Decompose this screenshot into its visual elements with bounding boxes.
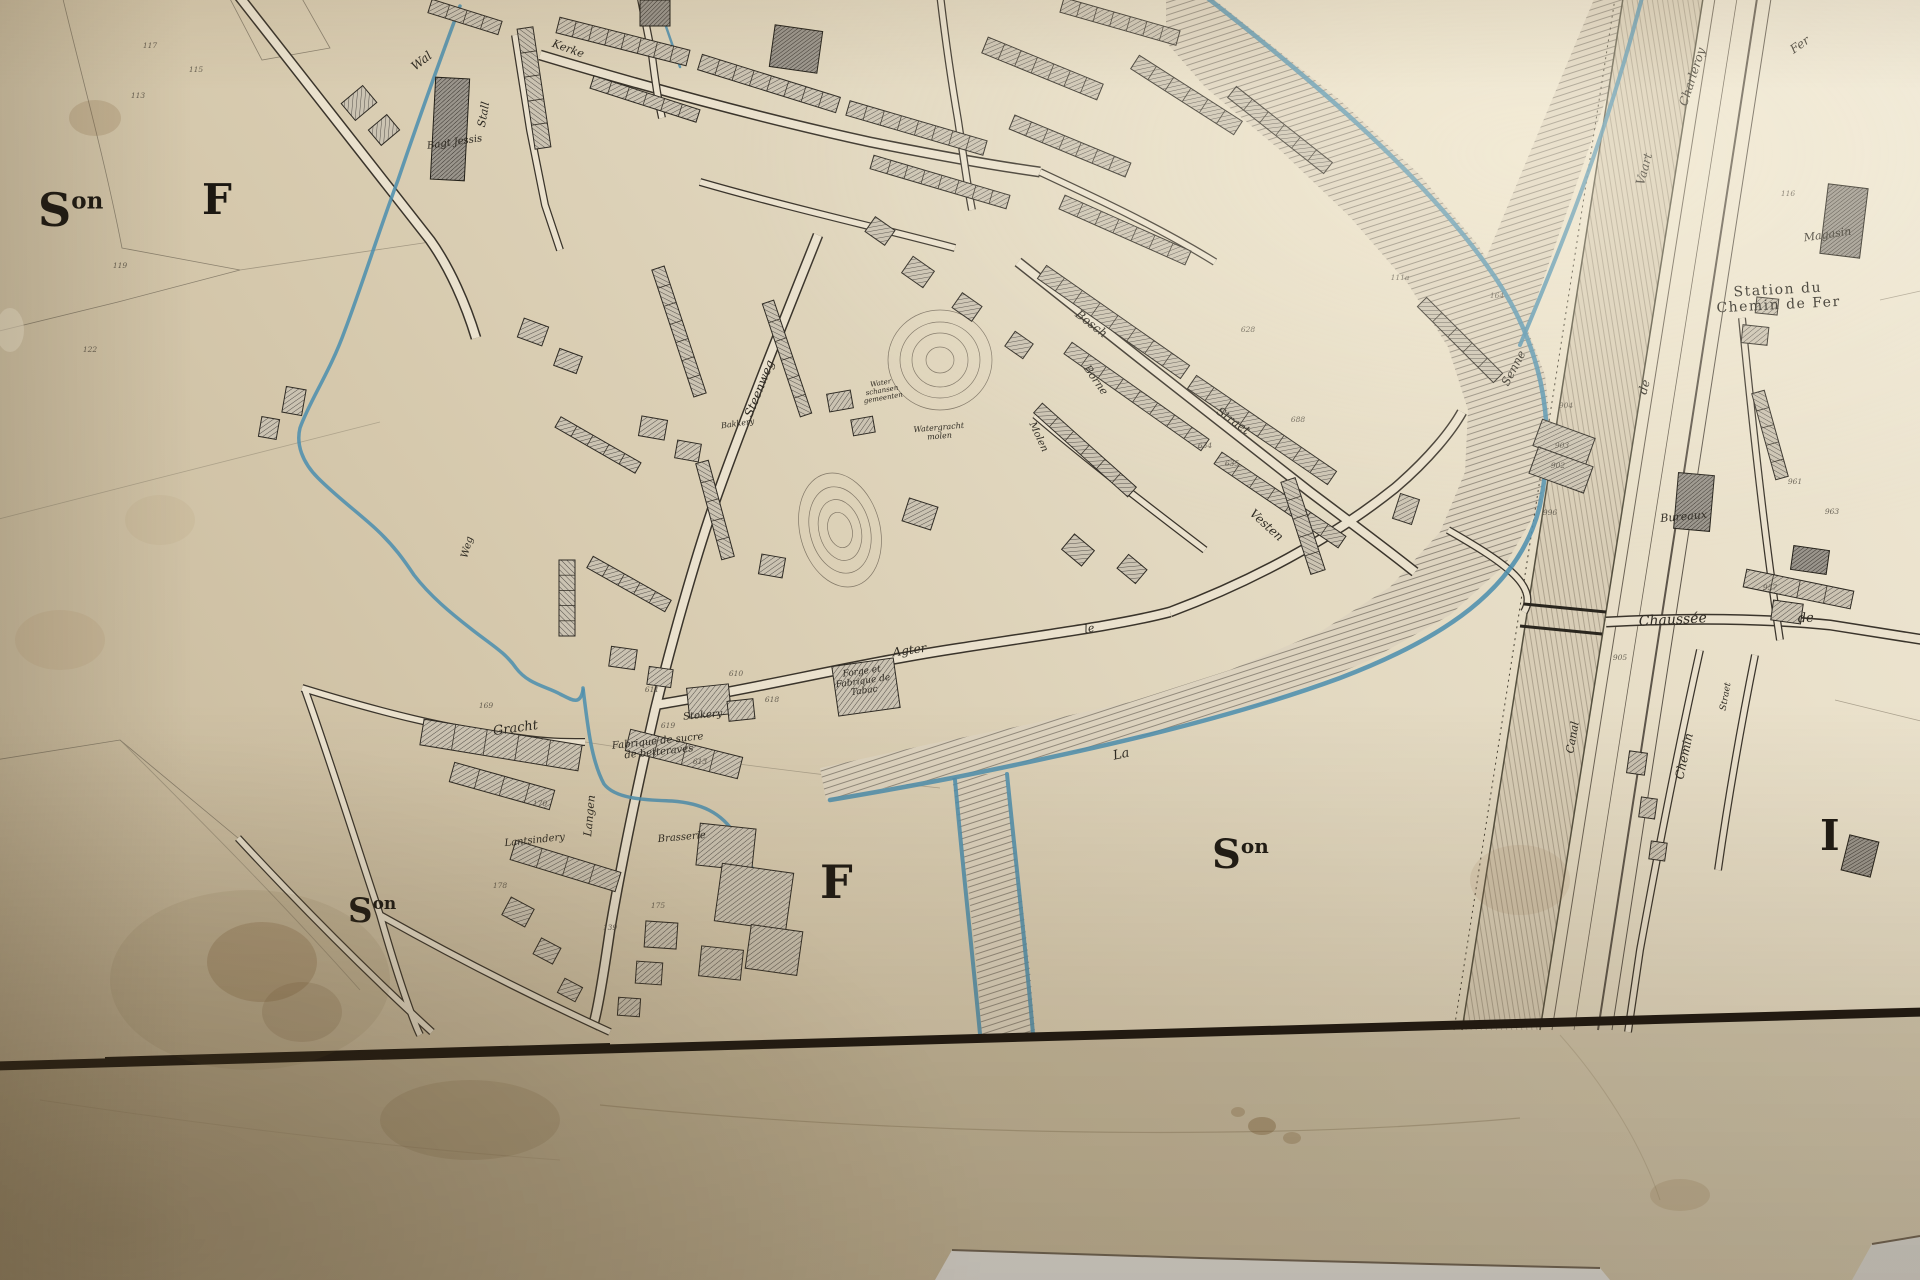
building (1741, 325, 1769, 346)
parcel-number: 611 (645, 685, 659, 694)
building (635, 961, 662, 985)
building (827, 390, 854, 412)
building (727, 699, 755, 722)
section-letter: F (820, 855, 853, 909)
parcel-number: 903 (1555, 441, 1570, 450)
parcel-number: 169 (479, 701, 494, 710)
parcel-number: 613 (693, 757, 708, 766)
building (640, 0, 670, 26)
building (758, 554, 785, 578)
building (282, 386, 306, 415)
parcel-number: 113 (131, 91, 146, 100)
parcel-number: 178 (493, 881, 508, 890)
parcel-number: 618 (765, 695, 780, 704)
building (1820, 184, 1868, 258)
parcel-number: 628 (1241, 325, 1256, 334)
building (609, 646, 638, 669)
building (699, 946, 744, 980)
parcel-number: 688 (1291, 415, 1306, 424)
parcel-number: 164 (1490, 291, 1505, 300)
parcel-number: 119 (113, 261, 128, 270)
house-terrace (559, 560, 575, 636)
building (675, 440, 702, 462)
parcel-number: 902 (1551, 461, 1566, 470)
building (1639, 797, 1658, 819)
building (1649, 841, 1667, 861)
section-letter: F (202, 175, 232, 224)
parcel-number: 905 (1613, 653, 1628, 662)
building (258, 417, 279, 440)
building (430, 77, 469, 181)
parcel-number: 115 (189, 65, 204, 74)
building (1627, 751, 1648, 775)
parcel-number: 634 (1198, 441, 1213, 450)
parcel-number: 175 (651, 901, 666, 910)
parcel-number: 117 (143, 41, 158, 50)
parcel-number: 635 (1225, 459, 1240, 468)
building (769, 25, 822, 73)
cadastral-map-photo: WalStallKerkeBagt JessisSteenwegBakkeryB… (0, 0, 1920, 1280)
building (714, 863, 793, 930)
parcel-number: 996 (1543, 508, 1558, 517)
building (644, 921, 678, 949)
parcel-number: 116 (1781, 189, 1796, 198)
parcel-number: 619 (661, 721, 676, 730)
parcel-number: 139 (603, 923, 618, 932)
building (617, 997, 640, 1016)
parcel-number: 610 (729, 669, 744, 678)
parcel-number: 111a (1391, 273, 1410, 282)
section-letter: I (1820, 811, 1840, 860)
parcel-number: 957 (1763, 583, 1778, 592)
building (1791, 546, 1830, 575)
building (851, 416, 875, 436)
parcel-number: 122 (83, 345, 98, 354)
map-label: de (1797, 611, 1814, 627)
building (745, 925, 803, 976)
parcel-number: 904 (1559, 401, 1574, 410)
building (638, 416, 667, 440)
parcel-number: 961 (1788, 477, 1802, 486)
map-canvas: WalStallKerkeBagt JessisSteenwegBakkeryB… (0, 0, 1920, 1280)
parcel-number: 963 (1825, 507, 1840, 516)
parcel-number: 170 (533, 799, 548, 808)
